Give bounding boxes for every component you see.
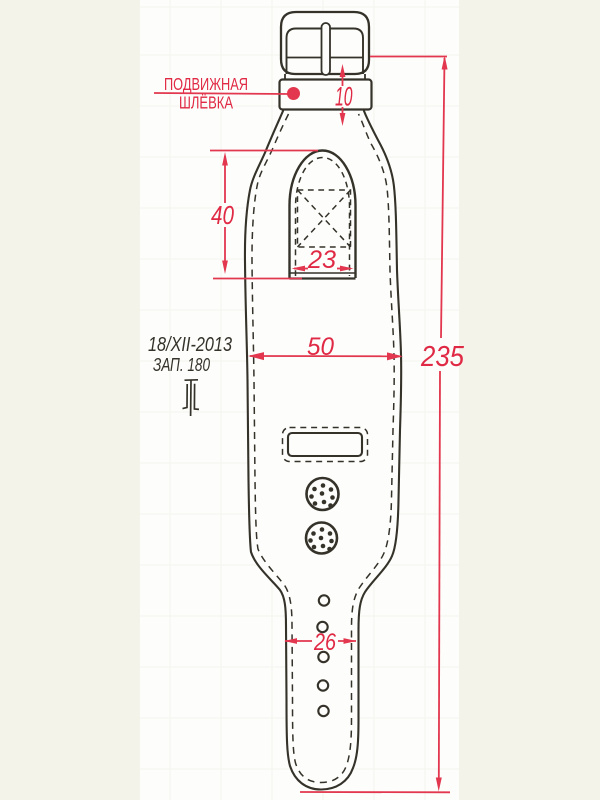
svg-text:ПОДВИЖНАЯ: ПОДВИЖНАЯ <box>164 74 248 94</box>
svg-text:ЗАП. 180: ЗАП. 180 <box>153 354 211 375</box>
svg-text:10: 10 <box>335 82 353 112</box>
svg-text:26: 26 <box>313 629 336 656</box>
svg-text:23: 23 <box>307 246 336 274</box>
svg-text:18/XII-2013: 18/XII-2013 <box>148 334 232 356</box>
svg-text:235: 235 <box>420 341 465 373</box>
svg-text:ШЛЁВКА: ШЛЁВКА <box>179 93 233 113</box>
svg-text:40: 40 <box>211 200 234 230</box>
